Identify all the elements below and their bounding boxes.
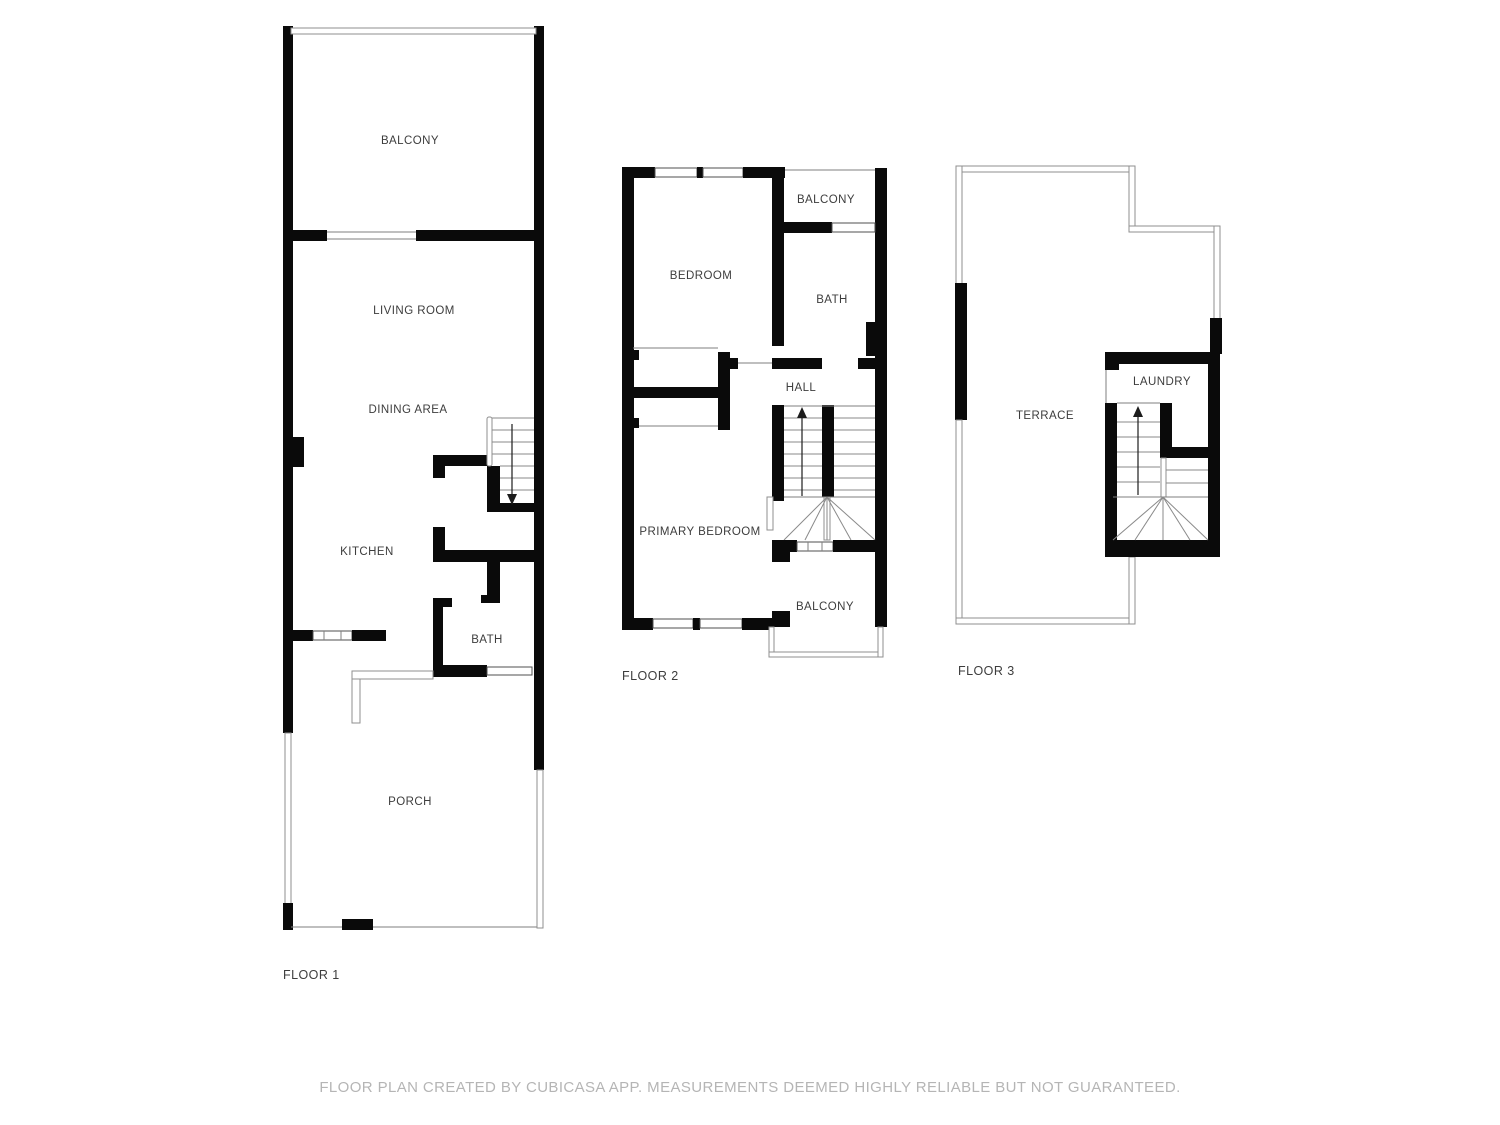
f3-laundry-wall bbox=[1105, 403, 1117, 543]
f2-left-wall bbox=[622, 167, 634, 630]
f2-wall-nub bbox=[730, 358, 738, 369]
f1-wall bbox=[487, 562, 500, 595]
f1-porch-railing-right bbox=[537, 770, 543, 928]
disclaimer-text: FLOOR PLAN CREATED BY CUBICASA APP. MEAS… bbox=[0, 1079, 1500, 1096]
f2-wardrobe-wall bbox=[718, 352, 730, 430]
f1-wall bbox=[481, 595, 500, 603]
f1-wall bbox=[352, 630, 386, 641]
f1-wall bbox=[433, 550, 544, 562]
f1-bath-wall bbox=[433, 598, 443, 667]
f2-bedroom-window bbox=[703, 168, 743, 177]
room-label-terrace: TERRACE bbox=[1016, 410, 1074, 422]
f2-wall bbox=[622, 167, 655, 178]
f2-bath-wall bbox=[858, 358, 887, 369]
room-label-porch: PORCH bbox=[388, 796, 432, 808]
f1-closet-wall bbox=[433, 455, 445, 478]
room-label-bedroom: BEDROOM bbox=[670, 270, 733, 282]
f1-wall bbox=[293, 630, 313, 641]
f2-wall bbox=[772, 170, 784, 346]
f3-laundry-wall bbox=[1105, 352, 1119, 370]
f2-wall bbox=[622, 618, 653, 630]
f1-porch-corner-post bbox=[283, 903, 293, 930]
f2-window-divider bbox=[697, 167, 703, 178]
f2-bath-wall bbox=[772, 358, 822, 369]
f3-stair-arrow-up bbox=[1133, 406, 1143, 417]
f3-laundry-wall bbox=[1105, 540, 1220, 557]
f2-primary-window bbox=[653, 619, 693, 628]
f2-balcony-wall bbox=[772, 611, 790, 627]
f3-terrace-railing bbox=[1129, 557, 1135, 624]
f3-terrace-railing bbox=[956, 420, 962, 624]
f2-bath-window bbox=[832, 223, 875, 232]
f3-terrace-railing bbox=[1214, 226, 1220, 320]
f2-wall bbox=[772, 540, 797, 552]
floor-label-3: FLOOR 3 bbox=[958, 664, 1015, 678]
room-label-balcony-f1: BALCONY bbox=[381, 135, 439, 147]
floor2-plan bbox=[622, 167, 887, 657]
f3-terrace-railing bbox=[1129, 166, 1135, 232]
f1-bath-wall bbox=[433, 665, 487, 677]
f2-staircase bbox=[767, 405, 875, 540]
f3-terrace-railing bbox=[956, 618, 1135, 624]
f1-balcony-railing bbox=[291, 28, 536, 34]
floor3-plan bbox=[955, 166, 1222, 624]
f3-terrace-railing bbox=[956, 166, 1135, 172]
f2-stair-window bbox=[797, 542, 833, 551]
f2-primary-window bbox=[700, 619, 742, 628]
f3-terrace-railing bbox=[1129, 226, 1220, 232]
room-label-dining-area: DINING AREA bbox=[368, 404, 447, 416]
floor-label-2: FLOOR 2 bbox=[622, 669, 679, 683]
f1-wall bbox=[416, 230, 544, 241]
f2-balcony-railing bbox=[878, 627, 883, 657]
floorplan-page: BALCONY LIVING ROOM DINING AREA KITCHEN … bbox=[0, 0, 1500, 1125]
f2-wall bbox=[742, 618, 772, 630]
f1-left-wall bbox=[283, 26, 293, 733]
room-label-balcony-f2-bottom: BALCONY bbox=[796, 601, 854, 613]
room-label-hall: HALL bbox=[786, 382, 817, 394]
f2-wall-nub bbox=[633, 418, 639, 428]
f1-porch-partition bbox=[352, 679, 360, 723]
room-label-living-room: LIVING ROOM bbox=[373, 305, 455, 317]
f2-wall-bump bbox=[866, 322, 877, 356]
f1-right-wall bbox=[534, 26, 544, 770]
f2-right-wall bbox=[875, 168, 887, 627]
f1-kitchen-window bbox=[313, 631, 352, 640]
room-label-primary-bedroom: PRIMARY BEDROOM bbox=[639, 526, 760, 538]
room-label-bath-f1: BATH bbox=[471, 634, 503, 646]
f1-bath-wall bbox=[433, 598, 452, 607]
f1-porch-railing-left bbox=[285, 733, 291, 905]
f3-left-wall bbox=[955, 283, 967, 420]
f1-porch-step bbox=[342, 919, 373, 930]
f2-wall bbox=[772, 222, 832, 233]
f3-laundry-divider bbox=[1160, 447, 1220, 458]
f1-closet-wall bbox=[433, 527, 445, 552]
f2-balcony-wall bbox=[772, 552, 790, 562]
f2-window-divider bbox=[693, 618, 700, 630]
f2-thin-wall bbox=[767, 497, 773, 530]
room-label-balcony-f2-top: BALCONY bbox=[797, 194, 855, 206]
f1-under-stair-wall bbox=[487, 503, 544, 512]
f3-laundry-wall bbox=[1105, 352, 1220, 364]
f2-stair-arrow-up bbox=[797, 407, 807, 418]
f3-right-wall bbox=[1210, 318, 1222, 354]
f1-wall bbox=[283, 230, 327, 241]
floor-label-1: FLOOR 1 bbox=[283, 968, 340, 982]
f2-wall bbox=[833, 540, 887, 552]
room-label-kitchen: KITCHEN bbox=[340, 546, 394, 558]
f1-wall-bump bbox=[293, 437, 304, 467]
f1-porch-partition bbox=[352, 671, 433, 679]
f2-wardrobe-wall bbox=[633, 387, 730, 398]
f2-balcony-railing bbox=[769, 652, 883, 657]
f1-stair-stringer bbox=[487, 417, 492, 466]
f2-wall-nub bbox=[633, 350, 639, 360]
f1-bath-window bbox=[487, 667, 532, 675]
room-label-bath-f2: BATH bbox=[816, 294, 848, 306]
f2-bedroom-window bbox=[655, 168, 697, 177]
floorplan-canvas bbox=[0, 0, 1500, 1125]
room-label-laundry: LAUNDRY bbox=[1133, 376, 1191, 388]
f3-terrace-railing bbox=[956, 166, 962, 285]
floor1-plan bbox=[283, 26, 544, 930]
